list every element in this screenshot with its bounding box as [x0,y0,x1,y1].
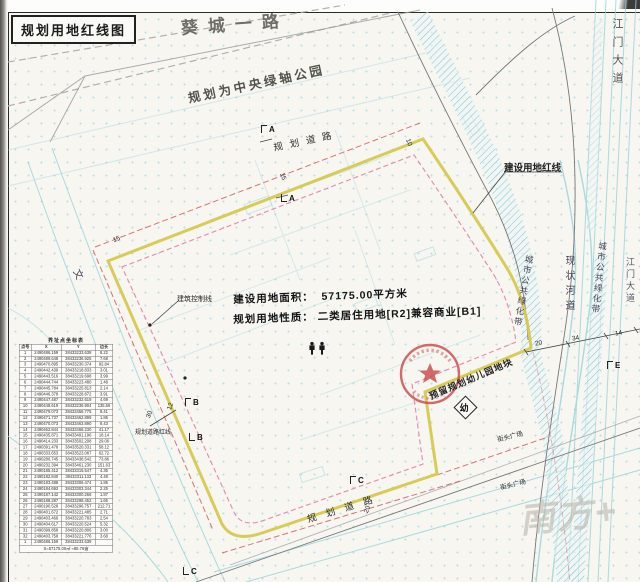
table-summary: S=57175.00㎡ ≈85.76亩 [19,546,113,553]
road-redline-label: 规划道路红线 [135,427,171,436]
section-marker-B: B [189,433,203,442]
section-marker-A: A [281,194,295,203]
planning-map-page: 规划用地红线图 葵城一路 规划为中央绿轴公园 江门大道 江门大道 建设用地红线 … [0,0,640,582]
dimension-label: 20 [534,339,542,347]
road-label-jiangmen-top: 江门大道 [609,18,625,90]
section-marker-C: C [183,567,197,576]
area-label: 建设用地面积： [233,291,314,306]
dimension-label: 34 [571,334,579,342]
pedestrians-icon [309,342,324,355]
construction-redline-label: 建设用地红线 [504,160,561,174]
control-point-dot [148,323,151,326]
section-marker-E: E [607,361,620,370]
coordinate-table-title: 界址点坐标表 [19,336,113,344]
building-control-label: 建筑控制线 [177,294,212,304]
section-marker-A: A [261,125,275,134]
watermark: 南方+ [516,482,620,544]
coordinate-table: 界址点坐标表 点号 X Y 边长 12490486.15938433233.63… [19,336,113,552]
road-label-jiangmen-right: 江门大道 [624,257,637,305]
map-title: 规划用地红线图 [11,15,136,44]
section-marker-B: B [185,398,199,407]
area-value: 57175.00平方米 [321,288,408,303]
table-row: 12490486.15938433233.638 [19,539,113,545]
river-label: 现状河道 [561,255,576,315]
nature-label: 规划用地性质： [233,311,314,326]
boundary-dot [183,376,186,379]
dimension-label: 14 [614,329,622,337]
section-marker-C: C [350,476,364,485]
